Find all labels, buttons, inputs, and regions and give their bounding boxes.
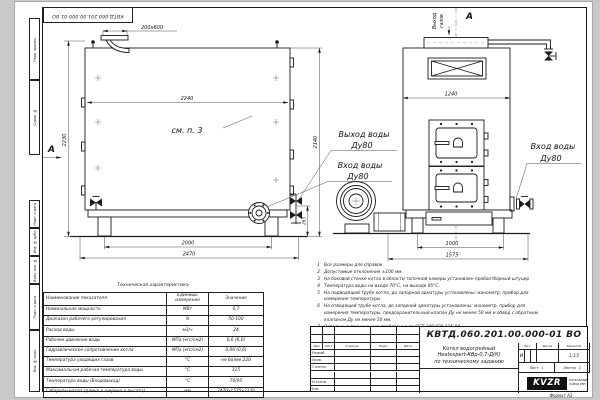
note-line: 6На отводящей трубе котла, до запорной а… — [314, 304, 546, 325]
row-razrab: Разраб. — [311, 350, 335, 357]
scale-header: Масштаб — [559, 343, 590, 350]
table-cell: МПа (кгс/см2) — [167, 347, 209, 357]
margin-label: Взам. инв. № — [33, 259, 37, 282]
row-tkontr: Т.контр. — [311, 364, 335, 371]
product-name-line3: по техническому заданию — [434, 359, 504, 366]
signature-row: Разраб. — [311, 350, 420, 357]
note-line: 5На подводящей трубе котла, до запорной … — [314, 291, 546, 305]
col-izm: Изм — [311, 343, 323, 350]
note-text: На отводящей трубе котла, до запорной ар… — [324, 304, 546, 325]
format-label: Формат А3 — [535, 393, 587, 398]
table-cell: Расход воды — [44, 326, 167, 336]
col-list: Лист — [323, 343, 335, 350]
note-line: 4Температура воды на входе 70°С, на выхо… — [314, 284, 546, 291]
signature-row: Т.контр. — [311, 364, 420, 371]
row-prov: Пров. — [311, 357, 335, 364]
note-number: 5 — [314, 291, 320, 305]
margin-box-inv-dubl: Инв. № дубл. — [29, 228, 40, 256]
margin-box-sprav-no: Справ. № — [29, 80, 40, 155]
organization-cell: KVZR КОТЕЛЬНЫЙ ЗАВОД РЭП — [518, 373, 589, 393]
note-text: Все размеры для справок — [324, 263, 546, 270]
product-name-line1: Котел водогрейный — [443, 346, 496, 353]
mass-header: Масса — [537, 343, 559, 350]
top-designation-box: КВТД.060.201.00.000-01 ВО — [43, 7, 133, 23]
note-text: Допустимые отклонения ±100 мм. — [324, 270, 546, 277]
table-cell: Максимальная рабочая температура воды — [44, 367, 167, 377]
col-podp: Подп. — [371, 343, 397, 350]
table-cell: °С — [167, 367, 209, 377]
note-text: Температура воды на входе 70°С, на выход… — [324, 284, 546, 291]
table-header: Наименование показателя — [44, 293, 167, 306]
table-cell: не более 220 — [209, 357, 264, 367]
margin-box-perv-primen: Перв. примен. — [29, 18, 40, 80]
table-header: Значение — [209, 293, 264, 306]
table-header: Единицы измерения — [167, 293, 209, 306]
margin-label: Подп. и дата — [33, 296, 37, 318]
table-cell: Диапазон рабочего регулирования — [44, 316, 167, 326]
note-number: 1 — [314, 263, 320, 270]
mass-value — [537, 350, 559, 363]
margin-box-vzam-inv: Взам. инв. № — [29, 256, 40, 284]
document-designation: КВТД.060.201.00.000-01 ВО — [419, 327, 589, 343]
table-cell: Рабочее давление воды — [44, 337, 167, 347]
table-cell: 0,06 (0,6) — [209, 347, 264, 357]
note-number: 6 — [314, 304, 320, 325]
technical-notes: 1Все размеры для справок 2Допустимые отк… — [314, 263, 546, 332]
top-designation-text: КВТД.060.201.00.000-01 ВО — [52, 13, 124, 18]
note-number: 3 — [314, 277, 320, 284]
signature-row: Пров. — [311, 357, 420, 364]
table-cell: 0,6 (6,0) — [209, 337, 264, 347]
company-name: КОТЕЛЬНЫЙ ЗАВОД РЭП — [569, 379, 587, 386]
sheet-value: 1 — [541, 366, 543, 370]
note-line: 1Все размеры для справок — [314, 263, 546, 270]
company-line2: ЗАВОД РЭП — [569, 383, 587, 387]
table-cell: 24 — [209, 326, 264, 336]
margin-box-inv-podl: Инв. № подл. — [29, 330, 40, 392]
lit-mass-scale-header: Лит. Масса Масштаб — [518, 343, 589, 350]
table-cell: м3/ч — [167, 326, 209, 336]
row-nkontr: Н.контр. — [311, 379, 335, 386]
margin-label: Справ. № — [33, 109, 37, 126]
note-number: 2 — [314, 270, 320, 277]
table-cell: Температура уходящих газов — [44, 357, 167, 367]
table-cell: Температура воды (Вход/выход) — [44, 377, 167, 387]
product-name-line2: Heatexpert-КВр-0,7-Д(К) — [437, 352, 500, 359]
col-data: Дата — [397, 343, 420, 350]
title-block: КВТД.060.201.00.000-01 ВО Изм Лист N док… — [310, 326, 588, 392]
note-line: 3На боковой стенке котла в области топоч… — [314, 277, 546, 284]
characteristics-table: Наименование показателя Единицы измерени… — [43, 292, 264, 398]
table-cell: °С — [167, 357, 209, 367]
table-title: Техническая характеристика — [43, 283, 263, 288]
note-number: 4 — [314, 284, 320, 291]
margin-box-podp-data-1: Подп. и дата — [29, 200, 40, 228]
margin-box-podp-data-2: Подп. и дата — [29, 284, 40, 330]
sheet-count-row: Лист1 Листов2 — [518, 363, 589, 373]
table-cell: мм — [167, 388, 209, 398]
col-ndoc: N докум. — [335, 343, 371, 350]
row-utv: Утв. — [311, 386, 335, 393]
margin-label: Перв. примен. — [33, 37, 37, 62]
kvzr-logo: KVZR — [527, 377, 567, 390]
table-cell: МПа (кгс/см2) — [167, 337, 209, 347]
margin-label: Инв. № подл. — [33, 349, 37, 372]
note-line: 2Допустимые отклонения ±100 мм. — [314, 270, 546, 277]
note-text: На подводящей трубе котла, до запорной а… — [324, 291, 546, 305]
table-cell: 50-100 — [209, 316, 264, 326]
lit-header: Лит. — [519, 343, 537, 350]
table-cell: 70/95 — [209, 377, 264, 387]
margin-label: Подп. и дата — [33, 203, 37, 225]
sheet-label: Лист — [530, 366, 539, 370]
signature-row: Утв. — [311, 386, 420, 393]
revision-header: Изм Лист N докум. Подп. Дата — [311, 343, 420, 350]
table-cell: °С — [167, 377, 209, 387]
note-text: На боковой стенке котла в области топочн… — [324, 277, 546, 284]
name-sub-cell — [419, 369, 518, 393]
lit-mass-scale-values: И 1:15 — [518, 350, 589, 363]
drawing-sheet-page: { "sheet": { "designation_top": "КВТД.06… — [0, 0, 600, 400]
margin-label: Инв. № дубл. — [33, 230, 37, 253]
table-cell: 2470х1575х2230 — [209, 388, 264, 398]
table-cell: % — [167, 316, 209, 326]
revision-row — [311, 327, 420, 335]
scale-value: 1:15 — [559, 350, 590, 363]
table-cell: Гидравлическое сопротивление котла — [44, 347, 167, 357]
table-cell: Номинальная мощность — [44, 306, 167, 316]
table-cell: Габариты котла (длина х ширина х высота) — [44, 388, 167, 398]
table-cell: 115 — [209, 367, 264, 377]
product-name: Котел водогрейный Heatexpert-КВр-0,7-Д(К… — [419, 343, 518, 369]
table-cell: 0,7 — [209, 306, 264, 316]
table-cell: МВт — [167, 306, 209, 316]
sheets-value: 2 — [579, 366, 581, 370]
signature-row — [311, 372, 420, 379]
sheets-label: Листов — [563, 366, 576, 370]
revision-row — [311, 335, 420, 343]
signature-row: Н.контр. — [311, 379, 420, 386]
